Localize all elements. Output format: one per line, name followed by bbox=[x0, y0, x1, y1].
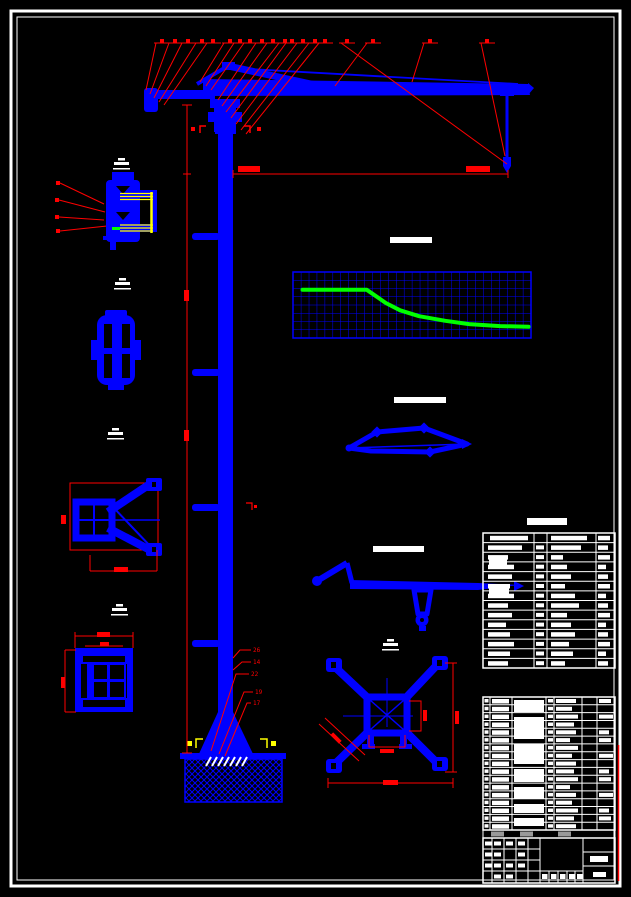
cell-text-block bbox=[599, 754, 613, 758]
cell-text-block bbox=[548, 707, 553, 711]
cell-text-block bbox=[551, 574, 571, 579]
title-cell-text-block bbox=[485, 864, 492, 868]
cell-text-block bbox=[599, 738, 611, 742]
title-cell-text-block bbox=[518, 864, 525, 868]
cell-text-block bbox=[556, 801, 572, 805]
cell-text-block bbox=[485, 769, 489, 773]
cell-text-block bbox=[536, 623, 544, 627]
callout-number-block bbox=[485, 39, 489, 43]
callout-number-block bbox=[313, 39, 317, 43]
cell-text-block bbox=[598, 594, 606, 599]
cell-text-block bbox=[551, 594, 575, 599]
cell-text-block bbox=[551, 584, 565, 589]
cell-text-block bbox=[556, 777, 578, 781]
dim-text-block bbox=[455, 711, 459, 724]
tie-section-mark bbox=[246, 503, 252, 510]
callout-number-block bbox=[345, 39, 349, 43]
cell-text-block bbox=[492, 824, 509, 829]
cell-text-block bbox=[551, 536, 587, 541]
callout-number-block bbox=[290, 39, 294, 43]
callout-number-block bbox=[301, 39, 305, 43]
cell-text-block bbox=[492, 762, 509, 767]
spec-table bbox=[483, 533, 615, 668]
cell-text-block bbox=[488, 623, 506, 628]
cell-text-block bbox=[536, 594, 544, 598]
title-cell-text-block bbox=[577, 874, 583, 879]
cell-text-block bbox=[548, 762, 553, 766]
cad-drawing-sheet: 26 14 22 19 17 bbox=[0, 0, 631, 897]
cell-text-block bbox=[536, 632, 544, 636]
cell-text-block bbox=[548, 824, 553, 828]
callout-number-block bbox=[428, 39, 432, 43]
cell-text-block bbox=[548, 769, 553, 773]
cell-text-block bbox=[599, 730, 609, 734]
cell-text-block bbox=[488, 545, 522, 550]
cell-text-block bbox=[551, 555, 563, 560]
cell-text-block bbox=[485, 746, 489, 750]
title-block bbox=[483, 838, 615, 883]
mast-base-flare bbox=[198, 712, 254, 756]
callout-number-block bbox=[55, 215, 59, 219]
cell-text-block bbox=[548, 809, 553, 813]
callout-number-block bbox=[271, 39, 275, 43]
section-symbol-icon bbox=[382, 639, 399, 651]
cell-text-block bbox=[488, 652, 510, 657]
callout-leader-line bbox=[412, 43, 424, 82]
cell-text-block bbox=[551, 632, 575, 637]
cell-text-block bbox=[514, 769, 544, 782]
cell-text-block bbox=[485, 754, 489, 758]
callout-number-block bbox=[56, 181, 60, 185]
cell-text-block bbox=[556, 738, 570, 742]
cell-text-block bbox=[548, 738, 553, 742]
cell-text-block bbox=[489, 585, 509, 594]
title-cell-text-block bbox=[494, 864, 501, 868]
anchor-marker-left bbox=[187, 739, 203, 748]
callout-label: 26 bbox=[253, 647, 261, 654]
parts-table bbox=[483, 697, 615, 838]
dim-text-block bbox=[383, 780, 398, 785]
cell-text-block bbox=[488, 594, 514, 599]
cell-text-block bbox=[485, 738, 489, 742]
title-cell-text-block bbox=[494, 842, 501, 846]
spec-table-rows bbox=[483, 536, 615, 666]
callout-leader-line bbox=[341, 43, 507, 164]
section-symbol-icon bbox=[114, 278, 131, 290]
section-symbol-icon bbox=[107, 428, 124, 440]
dim-text-block bbox=[61, 515, 66, 524]
slewing-turret bbox=[214, 106, 236, 132]
cell-text-block bbox=[536, 642, 544, 646]
callout-label: 14 bbox=[253, 659, 261, 666]
cell-text-block bbox=[492, 723, 509, 728]
chart-grid bbox=[293, 272, 531, 338]
callout-number-block bbox=[160, 39, 164, 43]
title-cell-text-block bbox=[485, 842, 492, 846]
cell-text-block bbox=[536, 574, 544, 578]
mast-tie-1 bbox=[192, 233, 220, 240]
green-marker bbox=[112, 227, 120, 230]
cell-text-block bbox=[598, 574, 608, 579]
cell-text-block bbox=[488, 632, 510, 637]
title-cell-text-block bbox=[494, 875, 501, 879]
callout-label: 22 bbox=[251, 671, 259, 678]
title-cell-text-block bbox=[560, 874, 566, 879]
title-cell-text-block bbox=[494, 853, 501, 857]
dim-text-block bbox=[423, 710, 427, 721]
hook-tip bbox=[503, 166, 511, 173]
cell-text-block bbox=[551, 565, 567, 570]
cell-text-block bbox=[488, 642, 514, 647]
cell-text-block bbox=[514, 787, 544, 799]
callout-number-block bbox=[323, 39, 327, 43]
spec-table-title-bar bbox=[527, 518, 567, 525]
title-text-block bbox=[590, 856, 608, 862]
callout-number-block bbox=[228, 39, 232, 43]
dim-text-block bbox=[380, 749, 394, 753]
load-curve-chart bbox=[293, 272, 531, 338]
cell-text-block bbox=[536, 555, 544, 559]
cell-text-block bbox=[492, 793, 509, 798]
cell-text-block bbox=[492, 699, 509, 704]
cell-text-block bbox=[488, 661, 508, 666]
title-cell-text-block bbox=[506, 875, 513, 879]
jib-plan-title-bar bbox=[394, 397, 446, 403]
cell-text-block bbox=[485, 793, 489, 797]
cell-text-block bbox=[485, 824, 489, 828]
callout-leader-line bbox=[233, 662, 251, 670]
cell-text-block bbox=[551, 623, 571, 628]
dim-text-block bbox=[466, 166, 490, 172]
cell-text-block bbox=[548, 801, 553, 805]
cell-text-block bbox=[488, 565, 514, 570]
cell-text-block bbox=[551, 661, 565, 666]
detail-mast-section bbox=[61, 632, 133, 712]
callout-number-block bbox=[200, 39, 204, 43]
cell-text-block bbox=[556, 746, 578, 750]
cell-text-block bbox=[551, 652, 573, 657]
cell-text-block bbox=[492, 785, 509, 790]
callout-number-block bbox=[211, 39, 215, 43]
cell-text-block bbox=[598, 642, 610, 647]
cell-text-block bbox=[556, 769, 574, 773]
cell-text-block bbox=[598, 536, 610, 541]
foundation-slab bbox=[180, 753, 286, 759]
detail-jib-plan bbox=[346, 422, 473, 457]
cell-text-block bbox=[599, 769, 609, 773]
cell-text-block bbox=[536, 584, 544, 588]
callout-leader-line bbox=[59, 217, 104, 220]
cell-text-block bbox=[556, 785, 570, 789]
mast-tie-4 bbox=[192, 640, 220, 647]
dim-text-block bbox=[61, 677, 65, 688]
cell-text-block bbox=[488, 574, 512, 579]
cell-text-block bbox=[551, 613, 567, 618]
cell-text-block bbox=[536, 545, 544, 549]
cell-text-block bbox=[556, 762, 576, 766]
callout-number-block bbox=[260, 39, 264, 43]
header-text-block bbox=[520, 832, 533, 837]
dim-text-block bbox=[330, 732, 341, 743]
cell-text-block bbox=[492, 738, 509, 743]
cell-text-block bbox=[485, 730, 489, 734]
cell-text-block bbox=[548, 699, 553, 703]
title-cell-text-block bbox=[518, 853, 525, 857]
cell-text-block bbox=[488, 613, 512, 618]
callout-label: 17 bbox=[253, 700, 261, 707]
cell-text-block bbox=[599, 816, 611, 820]
cell-text-block bbox=[556, 809, 578, 813]
callout-number-block bbox=[56, 229, 60, 233]
cell-text-block bbox=[492, 816, 509, 821]
cell-text-block bbox=[548, 816, 553, 820]
cell-text-block bbox=[548, 730, 553, 734]
callout-number-block bbox=[248, 39, 252, 43]
cell-text-block bbox=[599, 777, 611, 781]
cell-text-block bbox=[485, 816, 489, 820]
cell-text-block bbox=[492, 730, 509, 735]
cell-text-block bbox=[599, 793, 613, 797]
callout-leader-line bbox=[60, 226, 107, 231]
crane-elevation-view bbox=[144, 62, 534, 802]
cell-text-block bbox=[492, 754, 509, 759]
detail-cross-base bbox=[319, 656, 459, 788]
cell-text-block bbox=[599, 809, 609, 813]
section-symbol-icon bbox=[111, 604, 128, 616]
cell-text-block bbox=[514, 717, 544, 739]
cell-text-block bbox=[514, 744, 544, 764]
callout-number-block bbox=[283, 39, 287, 43]
cell-text-block bbox=[548, 746, 553, 750]
cell-text-block bbox=[514, 804, 544, 813]
cell-text-block bbox=[492, 746, 509, 751]
header-text-block bbox=[491, 832, 504, 837]
callout-leader-line bbox=[335, 43, 367, 86]
cell-text-block bbox=[548, 785, 553, 789]
chart-title-bar bbox=[390, 237, 432, 243]
title-cell-text-block bbox=[506, 842, 513, 846]
cell-text-block bbox=[492, 769, 509, 774]
mast-tie-3 bbox=[192, 504, 220, 511]
anchor-marker-right bbox=[260, 739, 276, 748]
cell-text-block bbox=[548, 793, 553, 797]
cell-text-block bbox=[598, 584, 610, 589]
cell-text-block bbox=[598, 555, 610, 560]
dim-text-block bbox=[184, 290, 189, 301]
cell-text-block bbox=[548, 754, 553, 758]
title-text-block bbox=[593, 872, 606, 877]
cell-text-block bbox=[536, 613, 544, 617]
cell-text-block bbox=[492, 707, 509, 712]
cell-text-block bbox=[556, 824, 576, 828]
cell-text-block bbox=[492, 809, 509, 814]
turret-lug-left bbox=[208, 112, 216, 122]
mast-tie-2 bbox=[192, 369, 220, 376]
top-callout-leaders bbox=[146, 39, 507, 164]
section-symbol-icon bbox=[113, 158, 130, 170]
cell-text-block bbox=[485, 801, 489, 805]
cell-text-block bbox=[556, 793, 576, 797]
cell-text-block bbox=[485, 723, 489, 727]
callout-leader-line bbox=[154, 43, 182, 98]
cell-text-block bbox=[598, 661, 608, 666]
callout-number-block bbox=[173, 39, 177, 43]
title-cell-text-block bbox=[485, 853, 492, 857]
callout-label: 19 bbox=[255, 689, 263, 696]
cell-text-block bbox=[598, 565, 606, 570]
cell-text-block bbox=[598, 613, 610, 618]
cell-text-block bbox=[490, 536, 528, 541]
cell-text-block bbox=[536, 603, 544, 607]
callout-number-block bbox=[186, 39, 190, 43]
cell-text-block bbox=[598, 652, 606, 657]
cell-text-block bbox=[536, 661, 544, 665]
cell-text-block bbox=[492, 715, 509, 720]
cell-text-block bbox=[598, 603, 608, 608]
cell-text-block bbox=[492, 777, 509, 782]
cell-text-block bbox=[556, 715, 578, 719]
dim-text-block bbox=[238, 166, 260, 172]
cell-text-block bbox=[514, 700, 544, 712]
cell-text-block bbox=[489, 556, 507, 565]
cell-text-block bbox=[485, 699, 489, 703]
cell-text-block bbox=[485, 809, 489, 813]
slewing-detail-leaders bbox=[55, 181, 107, 233]
section-cut-mark-left bbox=[200, 126, 206, 133]
tower-mast bbox=[218, 130, 233, 758]
counterjib-view-title-bar bbox=[373, 546, 424, 552]
cell-text-block bbox=[556, 707, 572, 711]
cell-text-block bbox=[536, 652, 544, 656]
detail-slewing-unit bbox=[103, 172, 157, 250]
cell-text-block bbox=[548, 777, 553, 781]
dim-text-block bbox=[97, 632, 110, 637]
cell-text-block bbox=[556, 730, 576, 734]
trolley bbox=[500, 90, 514, 96]
cell-text-block bbox=[485, 715, 489, 719]
cell-text-block bbox=[551, 545, 581, 550]
callout-leader-line bbox=[59, 200, 105, 212]
cell-text-block bbox=[598, 632, 608, 637]
title-cell-text-block bbox=[569, 874, 575, 879]
cell-text-block bbox=[485, 762, 489, 766]
cell-text-block bbox=[551, 642, 569, 647]
cell-text-block bbox=[492, 801, 509, 806]
title-cell-text-block bbox=[518, 842, 525, 846]
cell-text-block bbox=[485, 785, 489, 789]
cell-text-block bbox=[556, 754, 572, 758]
cell-text-block bbox=[598, 545, 608, 550]
cell-text-block bbox=[548, 723, 553, 727]
callout-leader-line bbox=[233, 650, 251, 658]
dim-text-block bbox=[100, 642, 109, 646]
callout-leader-line bbox=[60, 183, 104, 204]
cell-text-block bbox=[551, 603, 579, 608]
cell-text-block bbox=[485, 777, 489, 781]
jib-tip bbox=[528, 83, 534, 95]
foundation-block bbox=[185, 759, 282, 802]
dim-text-block bbox=[114, 567, 128, 572]
cell-text-block bbox=[488, 603, 508, 608]
drawing-canvas: 26 14 22 19 17 bbox=[0, 0, 631, 897]
callout-leader-line bbox=[481, 43, 505, 156]
title-cell-text-block bbox=[542, 874, 548, 879]
cell-text-block bbox=[548, 715, 553, 719]
cell-text-block bbox=[556, 816, 574, 820]
cell-text-block bbox=[598, 623, 606, 628]
tower-base-callout-labels: 26 14 22 19 17 bbox=[251, 647, 263, 707]
cell-text-block bbox=[599, 715, 613, 719]
cell-text-block bbox=[485, 707, 489, 711]
detail-tie-bracket bbox=[61, 478, 162, 572]
dim-text-block bbox=[184, 430, 189, 441]
callout-number-block bbox=[371, 39, 375, 43]
title-cell-text-block bbox=[506, 864, 513, 868]
callout-number-block bbox=[238, 39, 242, 43]
parts-table-rows bbox=[483, 697, 615, 830]
cell-text-block bbox=[599, 699, 611, 703]
cell-text-block bbox=[556, 723, 574, 727]
title-cell-text-block bbox=[551, 874, 557, 879]
callout-number-block bbox=[55, 198, 59, 202]
cell-text-block bbox=[556, 699, 576, 703]
cell-text-block bbox=[536, 565, 544, 569]
header-text-block bbox=[558, 832, 571, 837]
detail-hoist-winch bbox=[91, 310, 141, 390]
cell-text-block bbox=[514, 818, 544, 826]
